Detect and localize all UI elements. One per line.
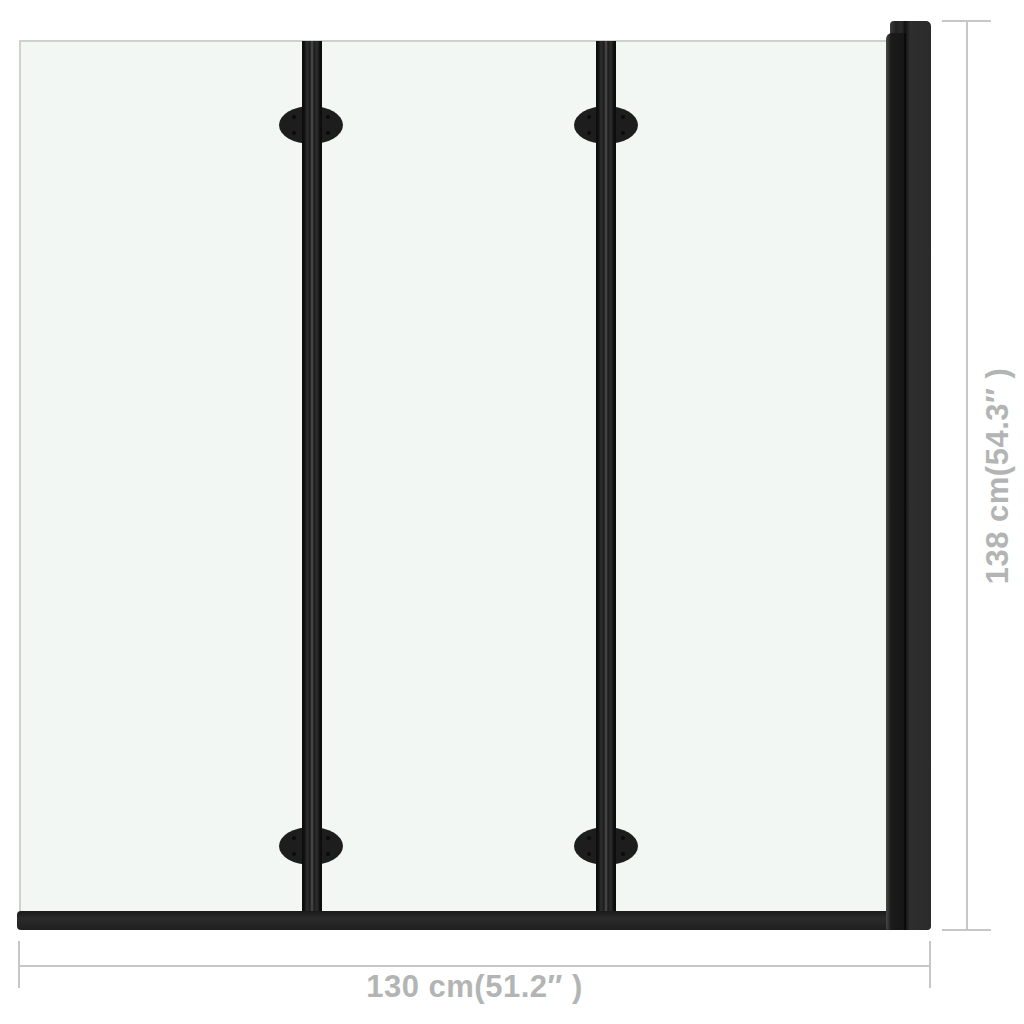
- door-edge-profile: [886, 33, 906, 930]
- width-dimension-line: [19, 965, 931, 967]
- height-dimension-cap-bottom: [942, 929, 991, 931]
- height-dimension-label: 138 cm(54.3″ ): [980, 276, 1016, 676]
- height-dimension-cap-top: [942, 20, 991, 22]
- fold-bar-right: [596, 41, 616, 912]
- width-dimension-label: 130 cm(51.2″ ): [19, 969, 930, 1005]
- fold-bar-left: [302, 41, 322, 912]
- bottom-frame-rail: [17, 911, 931, 930]
- product-diagram: 138 cm(54.3″ ) 130 cm(51.2″ ): [0, 0, 1024, 1024]
- glass-panel: [19, 40, 886, 913]
- height-dimension-line: [966, 21, 968, 930]
